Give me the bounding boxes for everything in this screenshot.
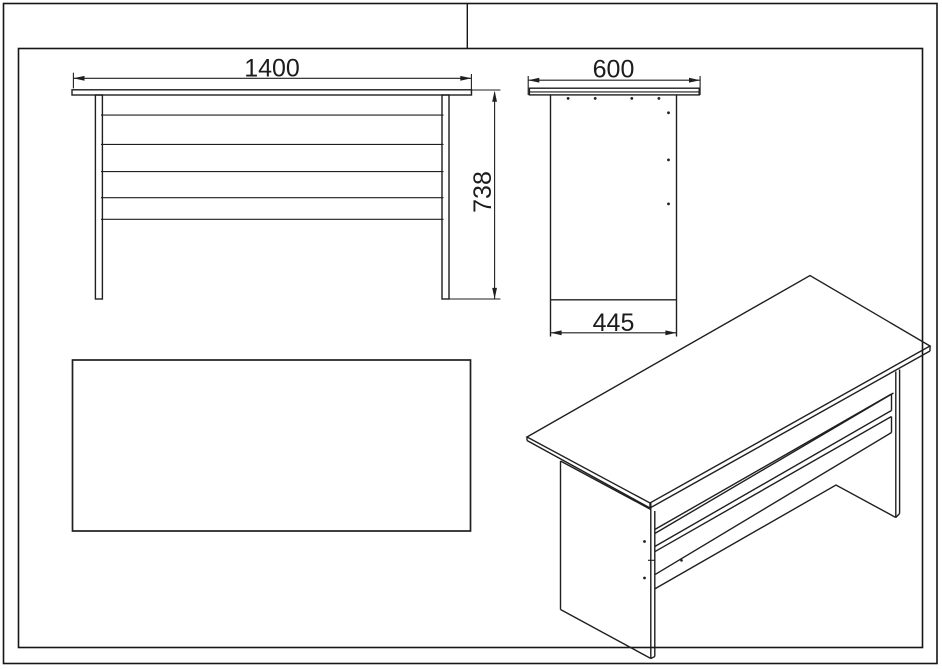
svg-text:445: 445 xyxy=(593,309,635,337)
svg-text:738: 738 xyxy=(469,171,497,213)
svg-text:1400: 1400 xyxy=(244,55,300,83)
svg-text:600: 600 xyxy=(593,56,635,84)
